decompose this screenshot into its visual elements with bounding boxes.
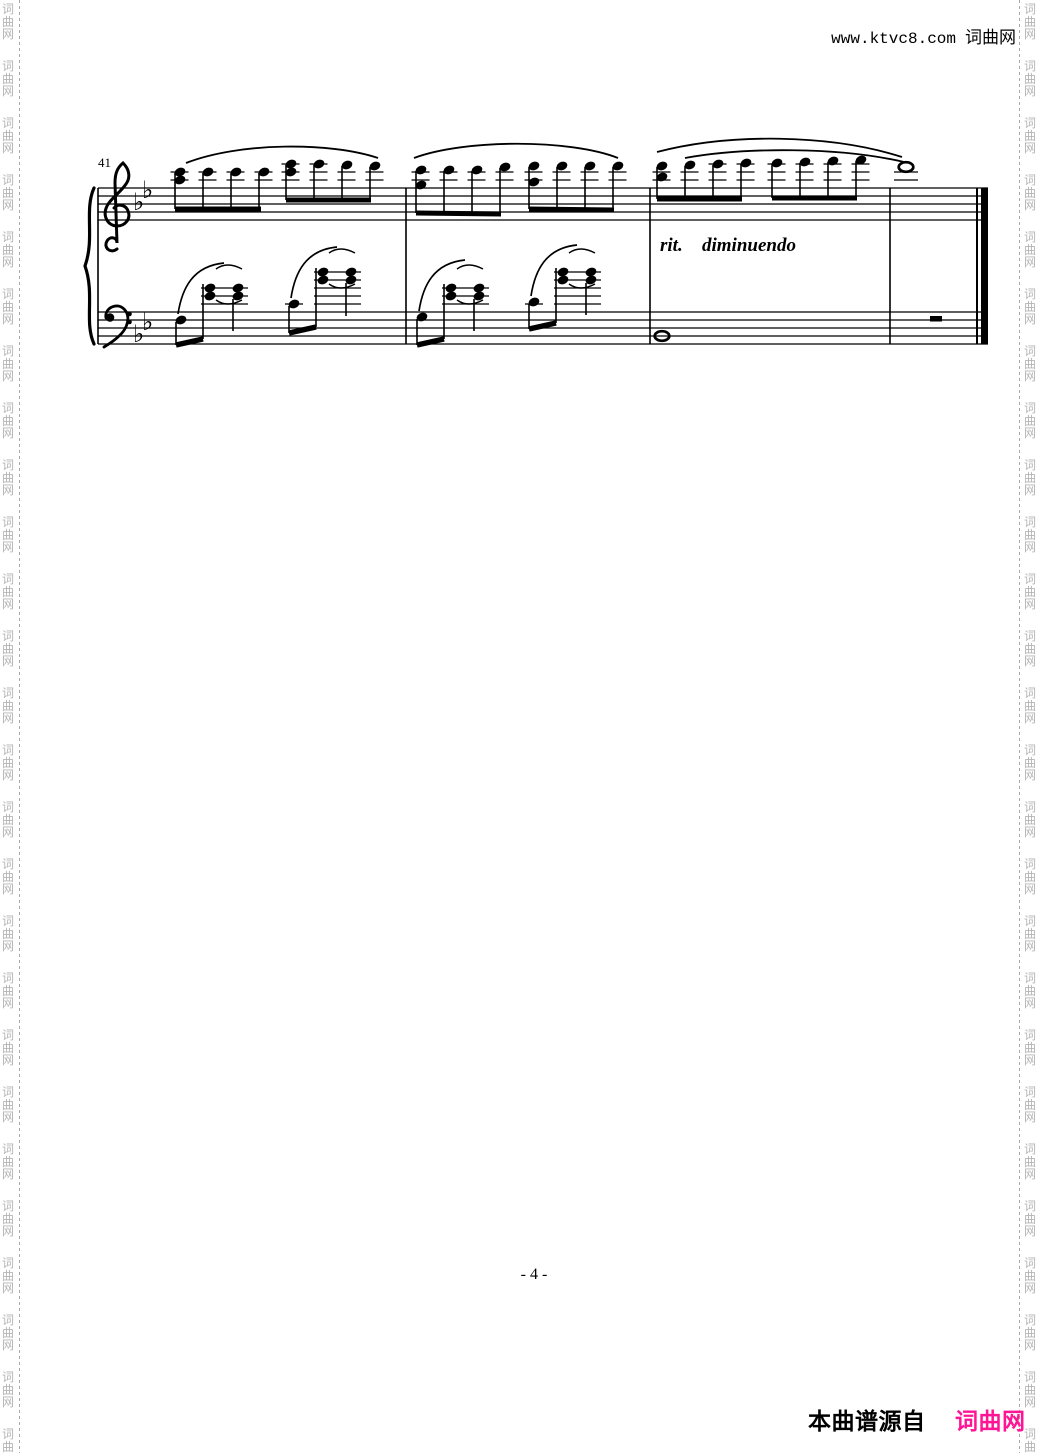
whole-note [899,162,914,172]
chord-note-head [316,274,329,286]
beam [529,209,614,210]
chord-note-head [444,290,457,302]
flat-sign: ♭ [142,308,153,336]
tie [329,249,355,253]
expression-rit: rit. [660,235,683,256]
treble-clef-icon [105,163,129,251]
credit-label: 本曲谱源自 [808,1402,926,1436]
page-number: - 4 - [521,1266,548,1284]
expression-diminuendo: diminuendo [702,235,796,256]
measure-number: 41 [98,155,111,170]
credit-site: 词曲网 [955,1402,1026,1436]
half-rest [930,316,942,322]
tie [569,249,595,253]
flat-sign: ♭ [142,176,153,204]
slur [414,144,618,158]
beam [416,213,501,214]
grand-staff-brace [85,188,94,344]
sheet-music-page: 词曲网词曲网词曲网词曲网词曲网词曲网词曲网词曲网词曲网词曲网词曲网词曲网词曲网词… [0,0,1042,1453]
chord-note-head [556,274,569,286]
slur [186,147,378,163]
notation-layer: ♭♭♭♭ [98,139,988,348]
tie [216,265,242,269]
tie [457,265,483,269]
chord-note-head [203,290,216,302]
score-svg: 41 rit. diminuendo ♭♭♭♭ [0,0,1042,1453]
